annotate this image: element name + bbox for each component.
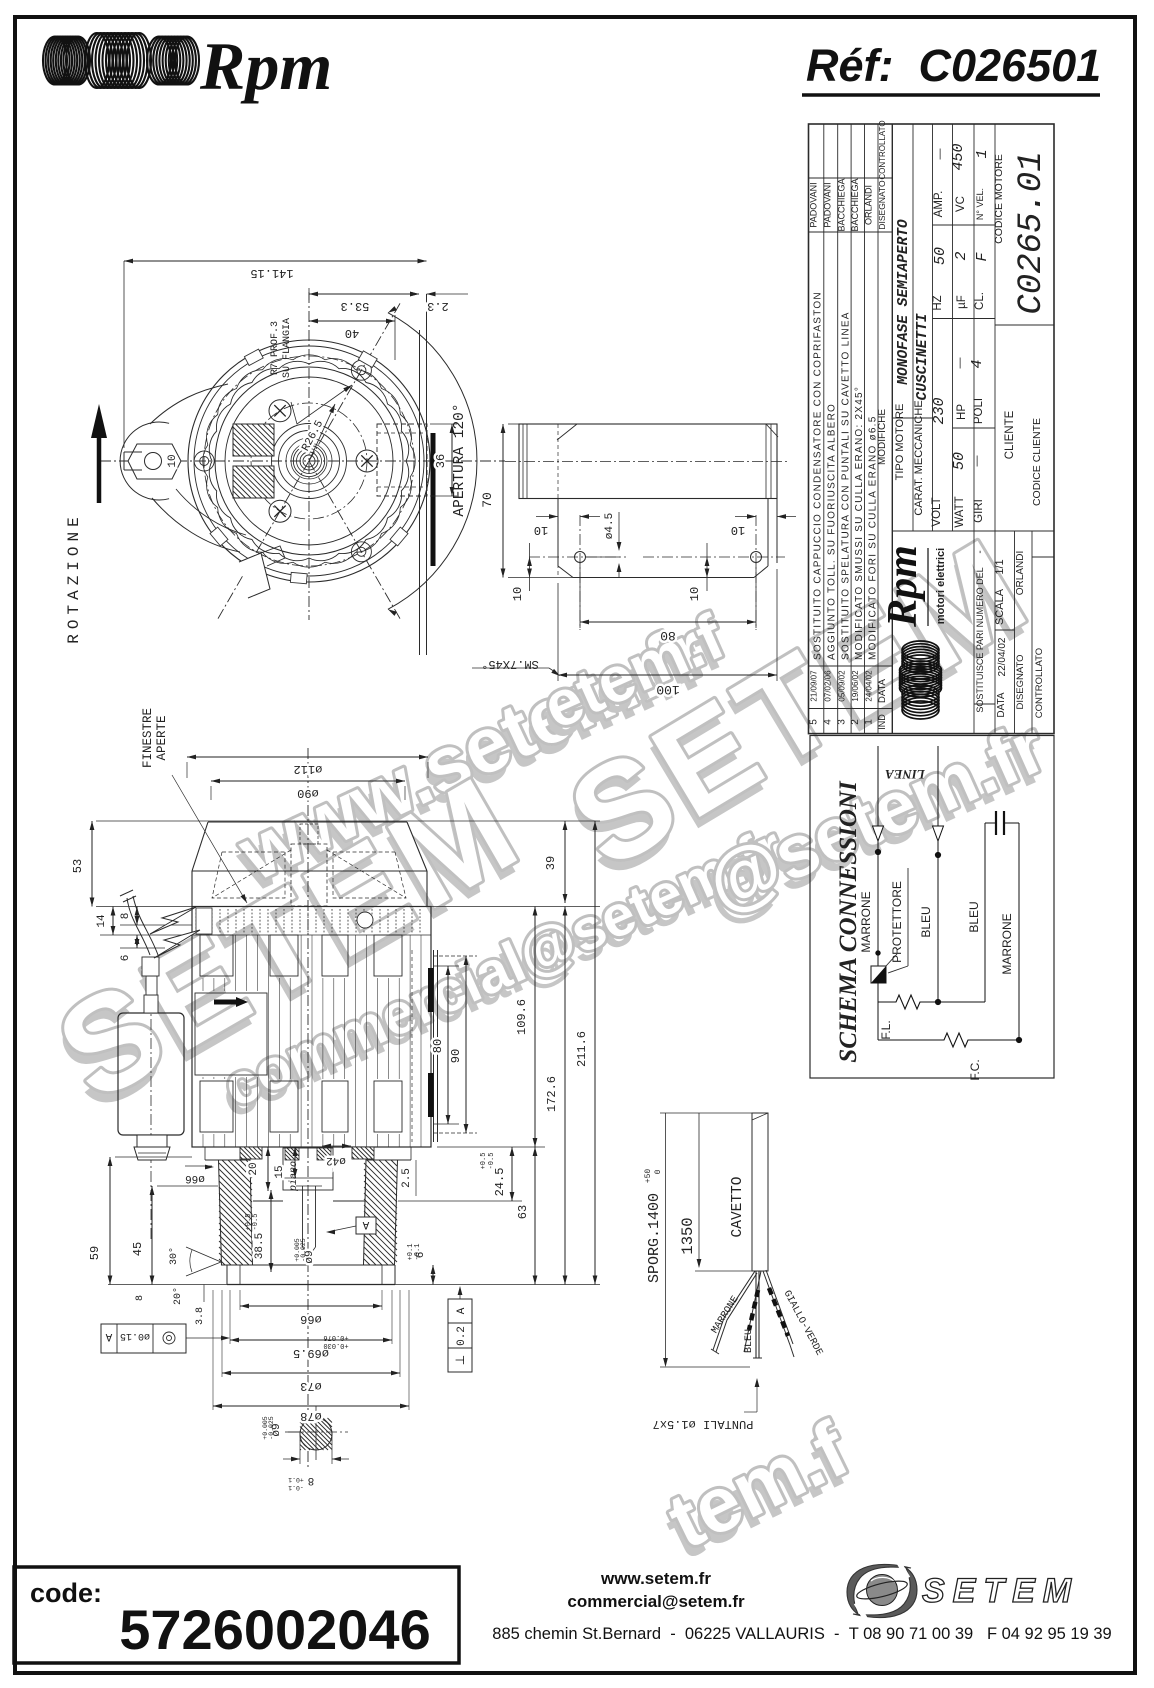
svg-text:CUSCINETTI: CUSCINETTI: [915, 313, 931, 400]
svg-text:10: 10: [731, 523, 745, 537]
svg-text:BACCHIEGA: BACCHIEGA: [837, 178, 847, 231]
svg-text:LINEA: LINEA: [885, 767, 926, 782]
svg-text:885 chemin St.Bernard - 0622: 885 chemin St.Bernard - 06225 VALLAURIS …: [492, 1625, 1111, 1643]
svg-text:DISEGNATO: DISEGNATO: [877, 180, 887, 230]
svg-text:172.6: 172.6: [545, 1076, 559, 1112]
svg-text:-0.025: -0.025: [300, 1238, 307, 1262]
svg-text:SPORG.1400: SPORG.1400: [646, 1193, 663, 1283]
svg-text:-0.1: -0.1: [414, 1244, 422, 1261]
svg-text:3.8: 3.8: [195, 1307, 206, 1325]
svg-text:ROTAZIONE: ROTAZIONE: [65, 512, 83, 643]
svg-text:A: A: [456, 1307, 468, 1314]
svg-text:-0.025: -0.025: [268, 1416, 275, 1440]
svg-text:100: 100: [656, 682, 679, 697]
svg-text:BLEU: BLEU: [967, 901, 981, 932]
svg-text:—: —: [934, 149, 946, 160]
svg-text:POLI: POLI: [973, 398, 985, 424]
svg-text:19/06/02: 19/06/02: [851, 670, 860, 702]
svg-text:ORLANDI: ORLANDI: [1015, 551, 1026, 595]
svg-text:CONTROLLATO: CONTROLLATO: [1034, 648, 1045, 718]
svg-text:-: -: [975, 550, 986, 553]
svg-text:Rpm: Rpm: [880, 545, 926, 628]
svg-text:+0.1: +0.1: [288, 1476, 304, 1483]
svg-text:C0265.01: C0265.01: [1013, 151, 1051, 314]
svg-text:N° VEL.: N° VEL.: [975, 188, 985, 220]
svg-text:-0.5: -0.5: [488, 1153, 496, 1170]
svg-text:22/04/02: 22/04/02: [997, 637, 1008, 676]
svg-text:ø66: ø66: [300, 1312, 322, 1326]
svg-text:CODICE MOTORE: CODICE MOTORE: [993, 154, 1005, 244]
svg-text:FINESTRE: FINESTRE: [141, 708, 155, 768]
svg-text:MONOFASE SEMIAPERTO: MONOFASE SEMIAPERTO: [896, 219, 912, 386]
svg-text:SETEM: SETEM: [922, 1572, 1079, 1610]
svg-text:-0.1: -0.1: [288, 1484, 304, 1491]
svg-text:1350: 1350: [679, 1217, 697, 1254]
svg-text:WATT: WATT: [954, 496, 966, 527]
svg-text:30°: 30°: [168, 1247, 180, 1265]
svg-text:0: 0: [654, 1169, 663, 1174]
svg-text:AMP.: AMP.: [933, 191, 945, 218]
svg-text:2: 2: [850, 719, 861, 725]
svg-text:SOSTITUITO CAPPUCCIO CONDENSAT: SOSTITUITO CAPPUCCIO CONDENSATORE CON CO…: [812, 291, 823, 660]
svg-text:R7 PROF.3: R7 PROF.3: [270, 321, 281, 375]
svg-text:PROTETTORE: PROTETTORE: [890, 881, 904, 963]
svg-text:MARRONE: MARRONE: [1000, 913, 1014, 974]
svg-text:39: 39: [544, 856, 558, 870]
svg-text:BACCHIEGA: BACCHIEGA: [850, 178, 860, 231]
svg-text:+50: +50: [644, 1169, 653, 1184]
svg-text:230: 230: [931, 397, 948, 424]
svg-text:PADOVANI: PADOVANI: [823, 182, 833, 227]
svg-text:F: F: [974, 252, 991, 262]
svg-text:A: A: [105, 1330, 112, 1342]
svg-text:1/1: 1/1: [994, 559, 1006, 574]
svg-text:F.L.: F.L.: [879, 1020, 893, 1039]
svg-text:APERTE: APERTE: [155, 715, 169, 760]
svg-text:SOSTITUITO SPELATURA CON PUNTA: SOSTITUITO SPELATURA CON PUNTALI SU CAVE…: [840, 311, 851, 660]
svg-text:-0.5: -0.5: [252, 1214, 260, 1231]
svg-text:SOSTITUISCE PARI NUMERO DEL: SOSTITUISCE PARI NUMERO DEL: [975, 567, 985, 712]
svg-text:63: 63: [516, 1205, 530, 1219]
svg-text:24/04/02: 24/04/02: [865, 670, 874, 702]
svg-text:45: 45: [131, 1242, 145, 1256]
svg-text:MARRONE: MARRONE: [859, 891, 873, 952]
svg-text:µF: µF: [956, 295, 968, 309]
svg-text:A: A: [362, 1218, 369, 1230]
svg-text:SU FLANGIA: SU FLANGIA: [282, 318, 293, 378]
svg-text:10: 10: [534, 523, 548, 537]
svg-text:24.5: 24.5: [493, 1168, 507, 1197]
svg-text:IND: IND: [877, 714, 887, 730]
svg-text:1: 1: [864, 719, 875, 725]
svg-text:GIRI: GIRI: [973, 499, 985, 523]
svg-text:ø112: ø112: [294, 762, 323, 776]
svg-text:SM.7X45°: SM.7X45°: [481, 657, 539, 671]
svg-text:APERTURA 120°: APERTURA 120°: [452, 403, 468, 516]
svg-text:ø4.5: ø4.5: [604, 513, 616, 539]
svg-text:50: 50: [932, 247, 949, 265]
svg-text:piano: piano: [288, 1161, 300, 1192]
svg-text:38.5: 38.5: [254, 1233, 266, 1259]
svg-text:DATA: DATA: [877, 678, 888, 703]
svg-text:90: 90: [449, 1049, 463, 1063]
svg-text:70: 70: [480, 492, 495, 508]
svg-text:8: 8: [308, 1474, 315, 1486]
svg-text:—: —: [971, 456, 983, 467]
svg-text:CAVETTO: CAVETTO: [730, 1177, 746, 1238]
svg-text:53.3: 53.3: [341, 299, 370, 313]
svg-text:141.15: 141.15: [250, 266, 293, 280]
svg-text:ø78: ø78: [300, 1409, 322, 1423]
svg-text:CONTROLLATO: CONTROLLATO: [878, 120, 887, 179]
svg-text:motori elettrici: motori elettrici: [935, 548, 947, 624]
svg-text:59: 59: [88, 1246, 102, 1260]
svg-text:10: 10: [511, 587, 525, 601]
svg-text:80: 80: [431, 1039, 445, 1053]
svg-text:8: 8: [135, 1295, 146, 1301]
svg-text:20: 20: [248, 1162, 260, 1175]
svg-text:VC: VC: [955, 196, 967, 212]
svg-text:⊥: ⊥: [454, 1355, 468, 1365]
svg-text:+0.030: +0.030: [323, 1341, 348, 1349]
svg-text:10: 10: [167, 454, 179, 467]
svg-text:AGGIUNTO TOLL. SU FUORIUSCITA: AGGIUNTO TOLL. SU FUORIUSCITA ALBERO: [826, 403, 837, 660]
svg-text:4: 4: [969, 359, 986, 368]
svg-text:05/09/02: 05/09/02: [838, 670, 847, 702]
svg-text:07/02/06: 07/02/06: [824, 670, 833, 702]
svg-text:3: 3: [837, 719, 848, 725]
svg-text:40: 40: [345, 326, 359, 340]
svg-text:MODIFICHE: MODIFICHE: [877, 409, 888, 465]
svg-text:PADOVANI: PADOVANI: [809, 182, 819, 227]
svg-text:4: 4: [823, 719, 834, 725]
svg-text:2: 2: [953, 251, 970, 260]
svg-text:ø66: ø66: [185, 1172, 205, 1184]
svg-text:ø73: ø73: [300, 1379, 322, 1393]
svg-text:80: 80: [660, 628, 676, 643]
svg-text:0.2: 0.2: [456, 1326, 468, 1346]
svg-text:36: 36: [434, 454, 448, 468]
svg-text:BLEU: BLEU: [919, 906, 933, 937]
svg-text:DISEGNATO: DISEGNATO: [1015, 654, 1026, 709]
svg-text:ø0.15: ø0.15: [120, 1330, 150, 1341]
svg-text:211.6: 211.6: [575, 1031, 589, 1067]
svg-text:2.3: 2.3: [427, 299, 449, 313]
svg-text:+0.5: +0.5: [480, 1153, 488, 1170]
svg-text:BLEU: BLEU: [744, 1329, 755, 1353]
svg-text:6: 6: [120, 955, 132, 962]
svg-text:www.setem.fr: www.setem.fr: [600, 1569, 711, 1588]
svg-text:8: 8: [120, 913, 132, 920]
svg-text:HP: HP: [956, 404, 968, 420]
svg-text:20°: 20°: [172, 1287, 184, 1305]
svg-text:SCALA: SCALA: [994, 588, 1006, 625]
svg-text:14: 14: [96, 914, 108, 928]
svg-text:TIPO MOTORE: TIPO MOTORE: [894, 404, 906, 481]
svg-text:5: 5: [809, 719, 820, 725]
svg-text:Rpm: Rpm: [199, 28, 332, 104]
svg-text:450: 450: [950, 143, 967, 170]
svg-text:ø90: ø90: [297, 786, 319, 800]
svg-text:DATA: DATA: [996, 692, 1007, 718]
svg-text:MODIFICATO SMUSSI SU CULLA ERA: MODIFICATO SMUSSI SU CULLA ERANO: 2X45°: [854, 386, 865, 660]
svg-text:commercial@setem.fr: commercial@setem.fr: [567, 1592, 745, 1611]
svg-text:+0.076: +0.076: [323, 1333, 348, 1341]
svg-text:21/09/07: 21/09/07: [810, 670, 819, 702]
svg-text:CODICE CLIENTE: CODICE CLIENTE: [1031, 418, 1043, 506]
svg-text:10: 10: [688, 587, 702, 601]
svg-text:Réf: C026501: Réf: C026501: [806, 40, 1101, 91]
svg-text:HZ: HZ: [932, 295, 944, 310]
svg-text:CL.: CL.: [974, 292, 986, 310]
svg-text:50: 50: [951, 452, 968, 470]
svg-text:F.C.: F.C.: [968, 1059, 982, 1080]
svg-text:2.5: 2.5: [401, 1168, 413, 1188]
svg-text:ø42: ø42: [326, 1154, 346, 1166]
svg-text:ORLANDI: ORLANDI: [864, 185, 874, 225]
svg-text:CARAT. MECCANICHE: CARAT. MECCANICHE: [913, 400, 925, 515]
svg-text:53: 53: [71, 859, 85, 873]
svg-text:15: 15: [274, 1165, 286, 1178]
svg-text:CLIENTE: CLIENTE: [1004, 410, 1016, 459]
svg-text:code:: code:: [30, 1578, 102, 1608]
svg-text:SCHEMA CONNESSIONI: SCHEMA CONNESSIONI: [835, 780, 862, 1063]
svg-text:1: 1: [974, 149, 991, 158]
svg-text:PUNTALI ø1.5x7: PUNTALI ø1.5x7: [653, 1417, 754, 1431]
svg-text:109.6: 109.6: [515, 999, 529, 1035]
svg-text:—: —: [954, 358, 966, 369]
svg-text:5726002046: 5726002046: [119, 1598, 430, 1661]
svg-text:VOLT: VOLT: [931, 497, 943, 526]
